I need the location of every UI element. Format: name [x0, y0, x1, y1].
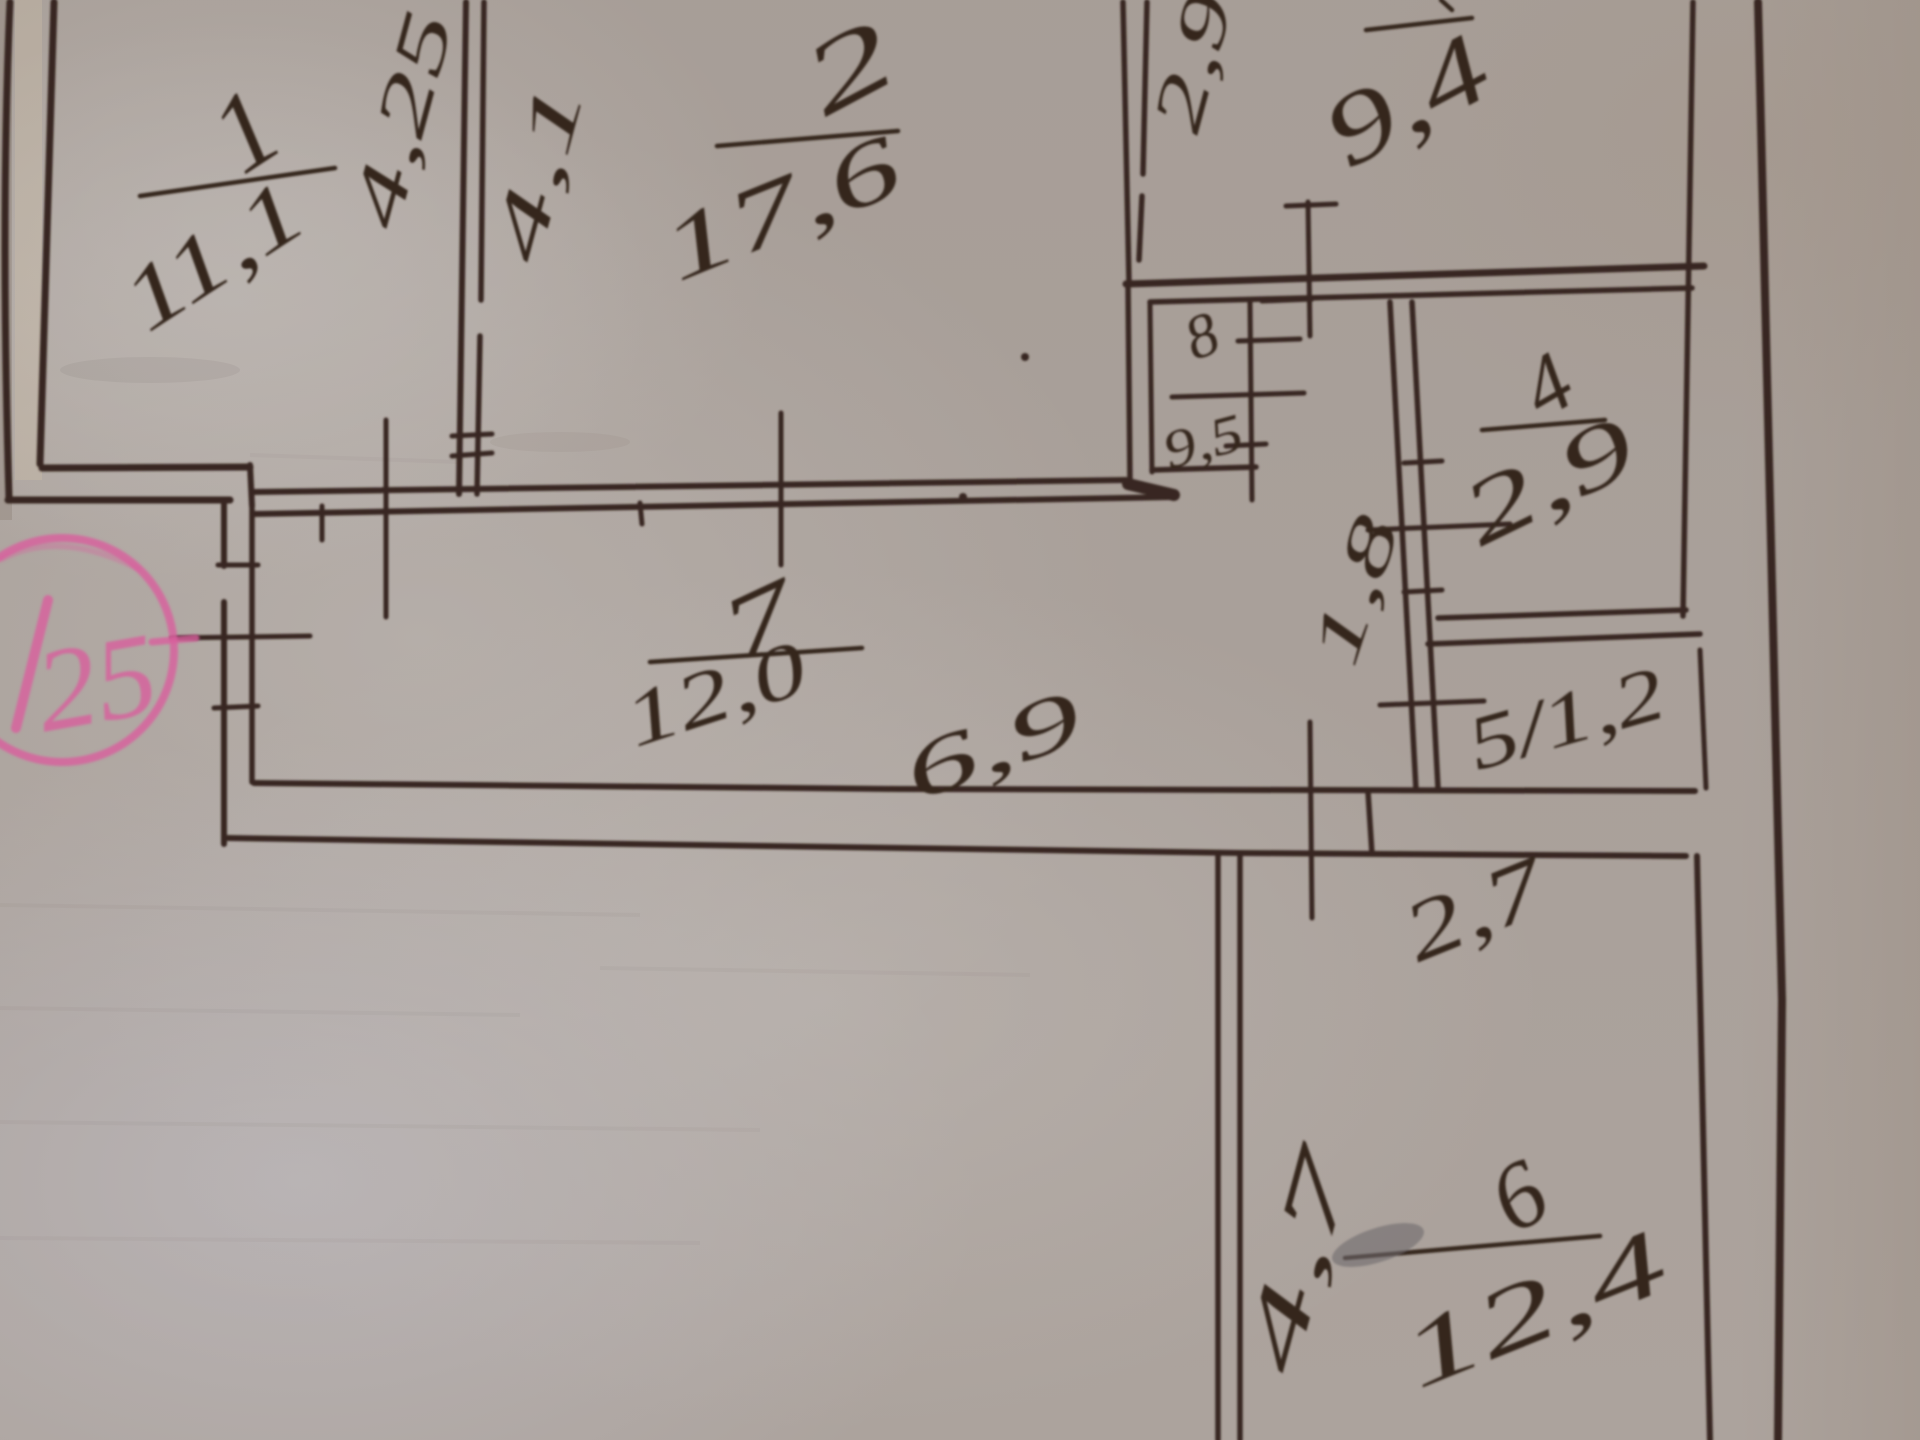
svg-text:25: 25: [26, 608, 167, 758]
